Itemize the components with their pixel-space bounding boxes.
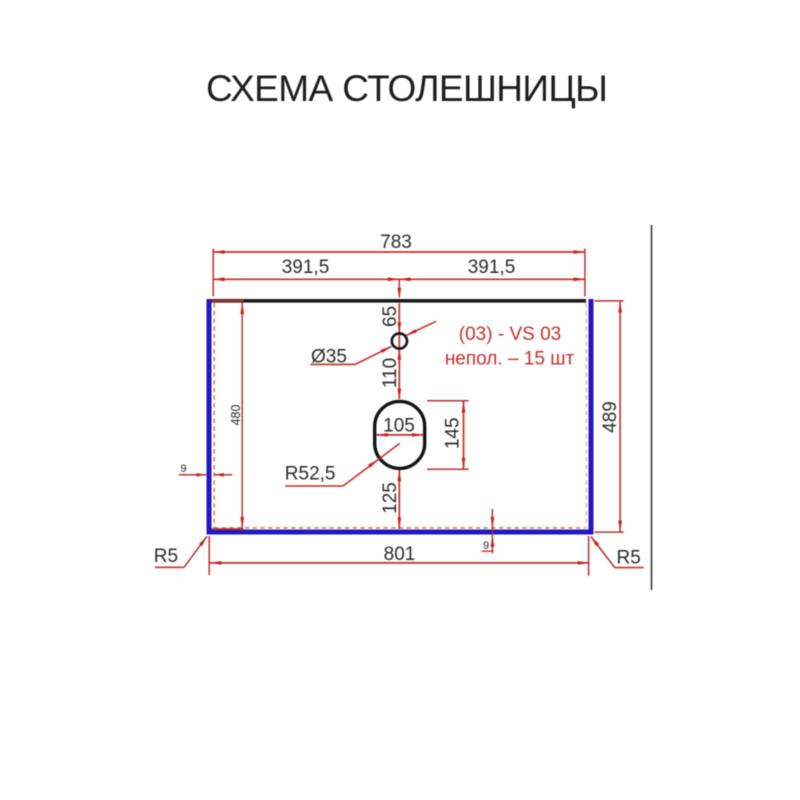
svg-text:783: 783	[380, 232, 412, 253]
svg-text:145: 145	[443, 417, 464, 449]
svg-text:391,5: 391,5	[282, 257, 330, 278]
svg-text:65: 65	[380, 306, 401, 327]
svg-text:9: 9	[181, 463, 187, 475]
svg-text:125: 125	[380, 482, 401, 514]
svg-text:9: 9	[483, 540, 489, 552]
svg-text:непол. – 15 шт: непол. – 15 шт	[445, 349, 575, 370]
svg-text:110: 110	[380, 358, 401, 388]
svg-text:391,5: 391,5	[468, 257, 516, 278]
svg-text:489: 489	[600, 401, 621, 433]
svg-text:R5: R5	[154, 546, 178, 567]
svg-text:СХЕМА СТОЛЕШНИЦЫ: СХЕМА СТОЛЕШНИЦЫ	[206, 68, 607, 109]
svg-text:(03) - VS 03: (03) - VS 03	[459, 324, 561, 345]
svg-text:105: 105	[383, 415, 415, 436]
svg-text:480: 480	[229, 405, 243, 426]
svg-text:R52,5: R52,5	[285, 464, 336, 485]
svg-text:R5: R5	[617, 548, 641, 569]
svg-text:801: 801	[384, 544, 416, 565]
